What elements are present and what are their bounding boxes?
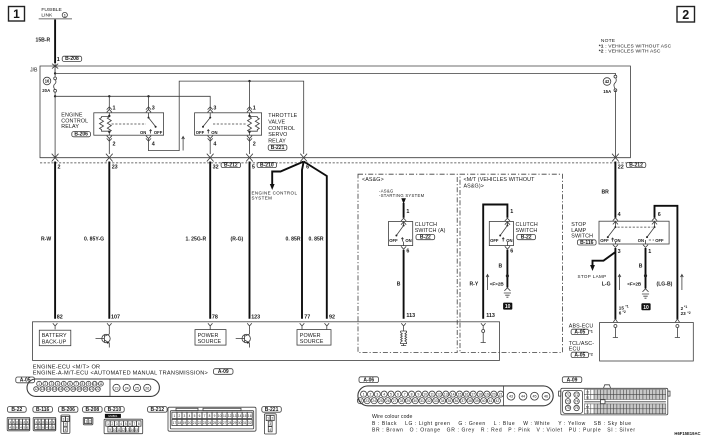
svg-text:33: 33 xyxy=(434,399,438,403)
svg-text:15: 15 xyxy=(135,428,139,432)
svg-text:B: B xyxy=(499,264,503,270)
svg-text:77: 77 xyxy=(586,391,590,395)
svg-text:0. 85R: 0. 85R xyxy=(309,237,324,243)
svg-text:46: 46 xyxy=(544,395,548,399)
svg-text:OFF: OFF xyxy=(196,130,205,135)
svg-text:32: 32 xyxy=(213,165,219,171)
svg-text:VALVE: VALVE xyxy=(268,120,285,126)
svg-text:17: 17 xyxy=(65,387,69,391)
svg-text:6: 6 xyxy=(406,249,409,255)
svg-text:ON: ON xyxy=(405,238,411,243)
svg-text:4: 4 xyxy=(269,428,271,432)
svg-text:41: 41 xyxy=(489,399,493,403)
svg-text:<M/T (VEHICLES WITHOUT: <M/T (VEHICLES WITHOUT xyxy=(464,177,536,183)
svg-text:3: 3 xyxy=(376,392,378,396)
svg-text:38: 38 xyxy=(468,399,472,403)
svg-text:3: 3 xyxy=(213,105,216,111)
svg-text:22: 22 xyxy=(618,165,624,171)
svg-text:23: 23 xyxy=(365,399,369,403)
svg-text:20: 20 xyxy=(492,392,496,396)
svg-text:(LG-B): (LG-B) xyxy=(657,281,673,287)
svg-text:A-09: A-09 xyxy=(218,369,229,375)
svg-text:10: 10 xyxy=(423,392,427,396)
svg-text:6: 6 xyxy=(658,212,661,218)
svg-text:2: 2 xyxy=(179,414,181,418)
svg-text:OFF: OFF xyxy=(600,238,609,243)
svg-text:14: 14 xyxy=(47,387,51,391)
svg-text:BR : Brown O : Orange GR :: BR : Brown O : Orange GR : Grey R : Red … xyxy=(372,428,635,434)
svg-text:B-22: B-22 xyxy=(521,235,532,241)
svg-text:1: 1 xyxy=(113,105,116,111)
svg-text:BR: BR xyxy=(602,190,610,196)
svg-text:22: 22 xyxy=(359,399,363,403)
svg-text:4: 4 xyxy=(64,428,66,432)
svg-text:9: 9 xyxy=(88,382,90,386)
svg-text:*2: *2 xyxy=(687,311,690,315)
svg-text:39: 39 xyxy=(475,399,479,403)
svg-text:1: 1 xyxy=(174,414,176,418)
svg-text:2: 2 xyxy=(113,141,116,147)
svg-text:11: 11 xyxy=(99,382,103,386)
svg-text:6: 6 xyxy=(69,382,71,386)
svg-text:7: 7 xyxy=(404,392,406,396)
svg-text:A-06: A-06 xyxy=(363,377,374,383)
svg-text:RELAY: RELAY xyxy=(268,139,286,145)
svg-text:ABS-ECU: ABS-ECU xyxy=(569,323,594,329)
svg-text:1: 1 xyxy=(510,209,513,215)
svg-text:72: 72 xyxy=(575,393,579,397)
svg-text:72: 72 xyxy=(586,410,590,414)
svg-text:27: 27 xyxy=(223,421,227,425)
svg-text:B-212: B-212 xyxy=(629,162,643,168)
svg-text:6: 6 xyxy=(619,310,622,315)
svg-text:10: 10 xyxy=(113,428,117,432)
svg-text:24: 24 xyxy=(208,421,212,425)
svg-text:1. 25G-R: 1. 25G-R xyxy=(186,237,207,243)
svg-text:9: 9 xyxy=(417,392,419,396)
svg-text:2: 2 xyxy=(44,382,46,386)
svg-text:1: 1 xyxy=(63,417,65,421)
svg-text:14: 14 xyxy=(130,428,134,432)
svg-text:SOURCE: SOURCE xyxy=(198,339,222,345)
svg-text:6: 6 xyxy=(397,392,399,396)
svg-text:H6F15E19AC: H6F15E19AC xyxy=(674,431,700,435)
svg-text:B-22: B-22 xyxy=(420,235,431,241)
svg-text:B-210: B-210 xyxy=(108,407,122,413)
svg-text:7: 7 xyxy=(204,414,206,418)
svg-text:FUSIBLE: FUSIBLE xyxy=(41,7,62,13)
svg-text:6: 6 xyxy=(129,422,131,426)
svg-text:SWITCH (A): SWITCH (A) xyxy=(415,228,446,234)
svg-text:4: 4 xyxy=(152,141,155,147)
svg-text:17: 17 xyxy=(471,392,475,396)
svg-text:36: 36 xyxy=(454,399,458,403)
svg-text:1: 1 xyxy=(406,209,409,215)
svg-text:A-05: A-05 xyxy=(574,352,585,358)
svg-text:<AS&G>: <AS&G> xyxy=(362,177,384,183)
svg-text:77: 77 xyxy=(304,315,310,321)
svg-text:19: 19 xyxy=(485,392,489,396)
svg-text:15: 15 xyxy=(458,392,462,396)
svg-text:3: 3 xyxy=(116,422,118,426)
svg-text:2: 2 xyxy=(253,141,256,147)
svg-text:76: 76 xyxy=(575,406,579,410)
svg-text:23: 23 xyxy=(681,311,687,316)
svg-text:8: 8 xyxy=(82,382,84,386)
svg-text:8: 8 xyxy=(209,414,211,418)
svg-text:LINK: LINK xyxy=(41,13,53,19)
svg-text:18: 18 xyxy=(71,387,75,391)
svg-text:SYSTEM: SYSTEM xyxy=(252,195,273,200)
svg-text:20A: 20A xyxy=(42,88,50,93)
svg-text:ON: ON xyxy=(211,130,217,135)
svg-text:3: 3 xyxy=(269,422,271,426)
svg-text:CONTROL: CONTROL xyxy=(268,126,295,132)
svg-text:8: 8 xyxy=(411,392,413,396)
svg-text:10: 10 xyxy=(218,414,222,418)
svg-text:SWITCH: SWITCH xyxy=(571,234,593,240)
svg-text:*1 : VEHICLES WITHOUT ASC: *1 : VEHICLES WITHOUT ASC xyxy=(599,43,672,49)
svg-text:-STARTING SYSTEM: -STARTING SYSTEM xyxy=(379,193,425,198)
svg-text:1: 1 xyxy=(85,420,87,424)
svg-text:B-221: B-221 xyxy=(271,145,285,151)
svg-text:B-22: B-22 xyxy=(11,407,22,413)
svg-text:15A: 15A xyxy=(603,89,611,94)
svg-text:23: 23 xyxy=(203,421,207,425)
svg-text:20: 20 xyxy=(188,421,192,425)
svg-text:14: 14 xyxy=(238,414,242,418)
svg-text:*2 : VEHICLES WITH ASC: *2 : VEHICLES WITH ASC xyxy=(599,49,661,55)
svg-text:28: 28 xyxy=(400,399,404,403)
svg-text:B-212: B-212 xyxy=(224,162,238,168)
svg-text:35: 35 xyxy=(448,399,452,403)
svg-text:0. 85Y-G: 0. 85Y-G xyxy=(84,237,104,243)
svg-text:21: 21 xyxy=(499,392,503,396)
svg-text:15: 15 xyxy=(243,414,247,418)
svg-text:21: 21 xyxy=(193,421,197,425)
svg-text:3: 3 xyxy=(51,382,53,386)
svg-text:13: 13 xyxy=(233,414,237,418)
svg-text:16: 16 xyxy=(59,387,63,391)
svg-text:123: 123 xyxy=(251,315,260,321)
svg-text:B-206: B-206 xyxy=(74,132,88,138)
svg-text:1: 1 xyxy=(648,249,651,255)
svg-text:NOTE: NOTE xyxy=(601,38,616,44)
svg-text:4: 4 xyxy=(120,422,122,426)
svg-text:21: 21 xyxy=(90,387,94,391)
svg-text:5: 5 xyxy=(390,392,392,396)
svg-text:22: 22 xyxy=(198,421,202,425)
svg-text:7: 7 xyxy=(134,422,136,426)
svg-text:6: 6 xyxy=(199,414,201,418)
svg-text:2: 2 xyxy=(89,420,91,424)
svg-text:18: 18 xyxy=(178,421,182,425)
svg-text:7: 7 xyxy=(75,382,77,386)
svg-text:37: 37 xyxy=(461,399,465,403)
svg-text:16: 16 xyxy=(465,392,469,396)
svg-text:1: 1 xyxy=(253,105,256,111)
svg-text:(R-G): (R-G) xyxy=(231,237,244,243)
svg-text:17: 17 xyxy=(173,421,177,425)
svg-text:B-208: B-208 xyxy=(65,56,79,62)
svg-text:3: 3 xyxy=(66,417,68,421)
svg-text:14: 14 xyxy=(451,392,455,396)
svg-text:78: 78 xyxy=(212,315,218,321)
svg-text:R-Y: R-Y xyxy=(470,281,479,287)
svg-text:THROTTLE: THROTTLE xyxy=(268,113,297,119)
svg-text:A-09: A-09 xyxy=(567,377,578,383)
svg-text:9: 9 xyxy=(109,428,111,432)
svg-text:15B-R: 15B-R xyxy=(36,38,51,44)
svg-text:*2: *2 xyxy=(623,310,626,314)
svg-text:ON: ON xyxy=(140,130,146,135)
svg-text:SOURCE: SOURCE xyxy=(300,339,324,345)
svg-text:RELAY: RELAY xyxy=(61,124,79,130)
svg-text:2: 2 xyxy=(271,417,273,421)
svg-text:10: 10 xyxy=(505,304,511,310)
svg-text:31: 31 xyxy=(420,399,424,403)
svg-text:71: 71 xyxy=(566,393,570,397)
svg-text:19: 19 xyxy=(78,387,82,391)
svg-text:30: 30 xyxy=(238,421,242,425)
svg-text:L-G: L-G xyxy=(602,281,611,287)
svg-text:25: 25 xyxy=(135,386,139,390)
svg-text:B-210: B-210 xyxy=(260,162,274,168)
svg-text:82: 82 xyxy=(57,315,63,321)
svg-text:73: 73 xyxy=(566,400,570,404)
svg-text:5: 5 xyxy=(194,414,196,418)
svg-text:20: 20 xyxy=(84,387,88,391)
svg-text:2: 2 xyxy=(682,8,689,22)
svg-text:12: 12 xyxy=(34,387,38,391)
svg-text:92: 92 xyxy=(329,315,335,321)
svg-text:4: 4 xyxy=(213,141,216,147)
svg-text:113: 113 xyxy=(486,313,495,319)
svg-text:9: 9 xyxy=(214,414,216,418)
svg-text:26: 26 xyxy=(218,421,222,425)
svg-text:Wire colour code: Wire colour code xyxy=(372,414,413,420)
svg-text:13: 13 xyxy=(41,387,45,391)
svg-text:3: 3 xyxy=(152,105,155,111)
svg-text:0. 85R: 0. 85R xyxy=(286,237,301,243)
svg-text:28: 28 xyxy=(228,421,232,425)
svg-text:4: 4 xyxy=(618,212,621,218)
svg-text:23: 23 xyxy=(112,165,118,171)
svg-text:12: 12 xyxy=(228,414,232,418)
svg-text:ON: ON xyxy=(614,238,620,243)
svg-text:B-116: B-116 xyxy=(36,407,50,413)
svg-text:92: 92 xyxy=(586,395,590,399)
svg-text:5: 5 xyxy=(63,382,65,386)
svg-text:STOP LAMP: STOP LAMP xyxy=(578,274,607,279)
svg-text:*1: *1 xyxy=(684,305,687,309)
svg-text:SWITCH: SWITCH xyxy=(516,228,538,234)
svg-text:42: 42 xyxy=(605,79,610,84)
svg-text:13: 13 xyxy=(126,428,130,432)
svg-text:43: 43 xyxy=(509,395,513,399)
svg-text:11: 11 xyxy=(430,392,434,396)
svg-text:A-05: A-05 xyxy=(574,329,585,335)
svg-text:26: 26 xyxy=(386,399,390,403)
svg-text:B-212: B-212 xyxy=(151,407,165,413)
svg-text:B-221: B-221 xyxy=(265,407,279,413)
svg-text:R-W: R-W xyxy=(41,237,51,243)
svg-text:1: 1 xyxy=(57,57,60,63)
svg-text:32: 32 xyxy=(248,421,252,425)
svg-text:4: 4 xyxy=(189,414,191,418)
svg-text:5: 5 xyxy=(252,165,255,171)
svg-text:57: 57 xyxy=(586,405,590,409)
svg-text:24: 24 xyxy=(125,386,129,390)
svg-text:10: 10 xyxy=(93,382,97,386)
svg-text:74: 74 xyxy=(575,400,579,404)
svg-text:ON: ON xyxy=(506,238,512,243)
svg-text:2: 2 xyxy=(370,392,372,396)
svg-text:J/B: J/B xyxy=(30,67,38,73)
svg-text:23: 23 xyxy=(115,386,119,390)
svg-text:16: 16 xyxy=(248,414,252,418)
svg-text:B : Black LG : Light green: B : Black LG : Light green G : Green L :… xyxy=(372,421,631,427)
svg-text:2: 2 xyxy=(112,422,114,426)
svg-text:30: 30 xyxy=(413,399,417,403)
svg-text:15: 15 xyxy=(53,387,57,391)
svg-text:OFF: OFF xyxy=(154,130,163,135)
svg-text:MU801: MU801 xyxy=(108,414,117,418)
svg-text:ON: ON xyxy=(638,238,644,243)
svg-text:12: 12 xyxy=(437,392,441,396)
svg-text:1: 1 xyxy=(363,392,365,396)
svg-text:4: 4 xyxy=(57,382,59,386)
svg-text:113: 113 xyxy=(406,313,415,319)
svg-text:42: 42 xyxy=(496,399,500,403)
svg-text:POWER: POWER xyxy=(198,333,219,339)
svg-text:3: 3 xyxy=(618,249,621,255)
svg-text:OFF: OFF xyxy=(490,238,499,243)
svg-text:BATTERY: BATTERY xyxy=(42,333,67,339)
svg-text:<F>2B: <F>2B xyxy=(627,281,642,286)
svg-text:5: 5 xyxy=(125,422,127,426)
svg-text:11: 11 xyxy=(223,414,227,418)
svg-text:8: 8 xyxy=(138,422,140,426)
svg-text:6: 6 xyxy=(510,249,513,255)
svg-text:22: 22 xyxy=(96,387,100,391)
svg-text:32: 32 xyxy=(427,399,431,403)
svg-text:29: 29 xyxy=(406,399,410,403)
svg-text:13: 13 xyxy=(444,392,448,396)
svg-text:SERVO: SERVO xyxy=(268,132,287,138)
svg-text:75: 75 xyxy=(566,406,570,410)
svg-text:1: 1 xyxy=(267,417,269,421)
svg-text:27: 27 xyxy=(393,399,397,403)
svg-text:1: 1 xyxy=(107,422,109,426)
svg-text:25: 25 xyxy=(379,399,383,403)
svg-text:*2: *2 xyxy=(589,352,593,356)
svg-text:25: 25 xyxy=(213,421,217,425)
svg-text:*1: *1 xyxy=(625,304,628,308)
svg-text:11: 11 xyxy=(117,428,121,432)
svg-text:B: B xyxy=(397,281,401,287)
svg-text:POWER: POWER xyxy=(300,333,321,339)
svg-text:B: B xyxy=(639,264,643,270)
svg-text:1: 1 xyxy=(38,382,40,386)
svg-text:16: 16 xyxy=(45,78,50,83)
svg-text:10: 10 xyxy=(643,305,649,311)
svg-text:1: 1 xyxy=(13,7,20,21)
svg-text:44: 44 xyxy=(521,395,525,399)
svg-text:24: 24 xyxy=(372,399,376,403)
svg-text:26: 26 xyxy=(145,386,149,390)
svg-text:4: 4 xyxy=(383,392,385,396)
svg-text:107: 107 xyxy=(111,315,120,321)
svg-text:ENGINE-A-M/T-ECU <AUTOMATED MA: ENGINE-A-M/T-ECU <AUTOMATED MANUAL TRANS… xyxy=(33,370,208,376)
svg-text:1: 1 xyxy=(64,13,66,17)
svg-text:12: 12 xyxy=(122,428,126,432)
svg-text:18: 18 xyxy=(478,392,482,396)
svg-text:31: 31 xyxy=(243,421,247,425)
svg-text:3: 3 xyxy=(184,414,186,418)
svg-text:BACK-UP: BACK-UP xyxy=(42,339,67,345)
svg-text:B-208: B-208 xyxy=(86,407,100,413)
svg-text:*1: *1 xyxy=(589,329,593,333)
svg-text:19: 19 xyxy=(183,421,187,425)
svg-text:34: 34 xyxy=(441,399,445,403)
svg-text:OFF: OFF xyxy=(389,238,398,243)
svg-text:40: 40 xyxy=(482,399,486,403)
svg-text:AS&G)>: AS&G)> xyxy=(464,183,484,189)
svg-text:OFF: OFF xyxy=(655,238,664,243)
svg-text:29: 29 xyxy=(233,421,237,425)
svg-text:2: 2 xyxy=(58,165,61,171)
svg-text:B-206: B-206 xyxy=(61,407,75,413)
svg-text:<F>2B: <F>2B xyxy=(490,281,505,286)
svg-text:B-116: B-116 xyxy=(580,240,594,246)
svg-text:45: 45 xyxy=(532,395,536,399)
svg-text:2: 2 xyxy=(64,423,66,427)
